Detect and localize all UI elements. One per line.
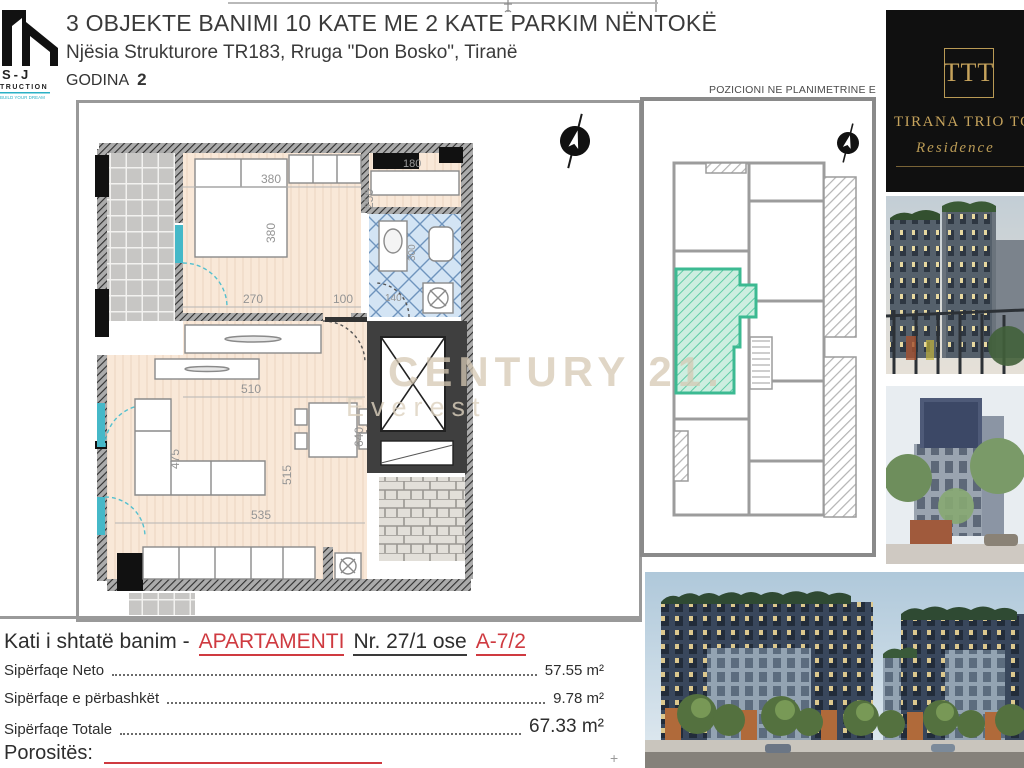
area-label: Sipërfaqe Neto <box>4 662 104 679</box>
kitchen-counter <box>143 547 315 579</box>
client-signature-line <box>104 762 382 764</box>
svg-text:640: 640 <box>352 427 366 447</box>
elevator-shaft <box>367 321 467 473</box>
area-value: 57.55 m² <box>545 662 604 679</box>
floor-description-line: Kati i shtatë banim -APARTAMENTINr. 27/1… <box>4 630 535 654</box>
svg-text:270: 270 <box>243 292 263 306</box>
dining-table <box>309 403 357 457</box>
page-title: 3 OBJEKTE BANIMI 10 KATE ME 2 KATE PARKI… <box>66 10 886 37</box>
brand-card: TTT TIRANA TRIO TOWERS Residence <box>886 10 1024 192</box>
brand-name: TIRANA TRIO TOWERS <box>894 114 1024 131</box>
svg-text:380: 380 <box>261 172 281 186</box>
svg-text:475: 475 <box>168 449 182 469</box>
svg-text:510: 510 <box>241 382 261 396</box>
area-label: Sipërfaqe e përbashkët <box>4 690 159 707</box>
brand-subname: Residence <box>916 140 1024 157</box>
unit-number: Nr. 27/1 ose <box>353 630 466 656</box>
dotted-leader <box>167 701 545 704</box>
unit-code: A-7/2 <box>476 630 526 656</box>
svg-text:535: 535 <box>251 508 271 522</box>
stair-landing <box>379 477 467 561</box>
plus-mark: + <box>610 750 618 766</box>
logo-tagline: BUILD YOUR DREAM <box>0 95 45 100</box>
area-value: 9.78 m² <box>553 690 604 707</box>
godina-number: 2 <box>137 70 146 89</box>
building-render-main <box>645 572 1024 768</box>
brand-rule <box>896 166 1024 167</box>
svg-text:180: 180 <box>403 158 421 170</box>
page-subtitle: Njësia Strukturore TR183, Rruga "Don Bos… <box>66 42 517 64</box>
svg-text:380: 380 <box>264 223 278 243</box>
area-row-totale: Sipërfaqe Totale 67.33 m² <box>4 716 604 738</box>
balcony2-floor <box>129 593 195 615</box>
top-rule <box>228 2 658 4</box>
hall-cabinet <box>371 171 459 195</box>
building-photo-street <box>886 386 1024 564</box>
building-photo-dusk <box>886 196 1024 374</box>
ttt-monogram: TTT <box>944 48 994 98</box>
svg-text:300: 300 <box>407 244 418 261</box>
toilet <box>429 227 453 261</box>
balcony-floor <box>107 153 175 321</box>
client-label: Porositës: <box>4 742 93 765</box>
dotted-leader <box>120 732 521 735</box>
svg-text:250: 250 <box>362 189 376 209</box>
keyplan-compass-icon <box>832 121 863 165</box>
keyplan-panel <box>640 97 876 557</box>
area-row-perbashket: Sipërfaqe e përbashkët 9.78 m² <box>4 690 604 707</box>
logo-brand-sub: TRUCTION <box>0 84 48 91</box>
page-container: S-J TRUCTION BUILD YOUR DREAM 3 OBJEKTE … <box>0 0 1024 768</box>
floor-plan-drawing: 380 380 270 100 250 180 300 140 510 475 … <box>79 103 639 619</box>
svg-text:140: 140 <box>385 293 402 304</box>
area-value: 67.33 m² <box>529 716 604 738</box>
apartment-label: APARTAMENTI <box>199 630 345 656</box>
area-row-neto: Sipërfaqe Neto 57.55 m² <box>4 662 604 679</box>
svg-text:100: 100 <box>333 292 353 306</box>
keyplan-drawing <box>644 101 872 553</box>
building-label: GODINA2 <box>66 70 147 90</box>
section-divider <box>0 616 642 619</box>
svg-text:515: 515 <box>280 465 294 485</box>
dotted-leader <box>112 673 537 676</box>
area-label: Sipërfaqe Totale <box>4 721 112 738</box>
company-logo: S-J TRUCTION BUILD YOUR DREAM <box>0 6 62 100</box>
floor-plan-panel: 380 380 270 100 250 180 300 140 510 475 … <box>76 100 642 622</box>
godina-label: GODINA <box>66 72 129 89</box>
north-arrow-icon <box>554 110 597 172</box>
logo-brand: S-J <box>2 67 31 82</box>
floor-prefix: Kati i shtatë banim - <box>4 630 190 653</box>
